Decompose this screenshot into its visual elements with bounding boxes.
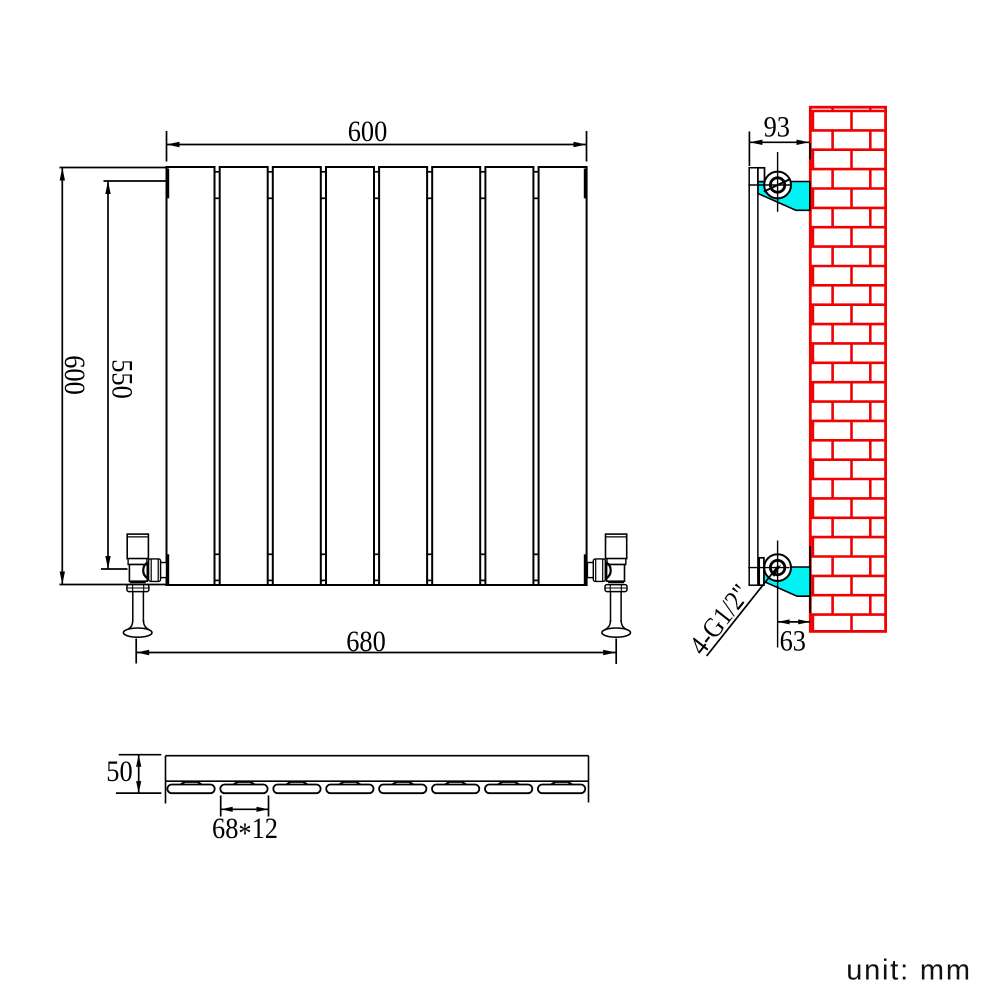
svg-text:600: 600: [348, 116, 388, 149]
svg-text:unit: mm: unit: mm: [846, 955, 972, 987]
svg-text:63: 63: [780, 625, 806, 658]
svg-text:600: 600: [57, 355, 90, 395]
svg-text:680: 680: [346, 626, 386, 659]
svg-text:550: 550: [105, 359, 138, 399]
svg-text:50: 50: [106, 756, 132, 789]
svg-text:93: 93: [764, 111, 790, 144]
svg-text:68*12: 68*12: [212, 813, 278, 851]
